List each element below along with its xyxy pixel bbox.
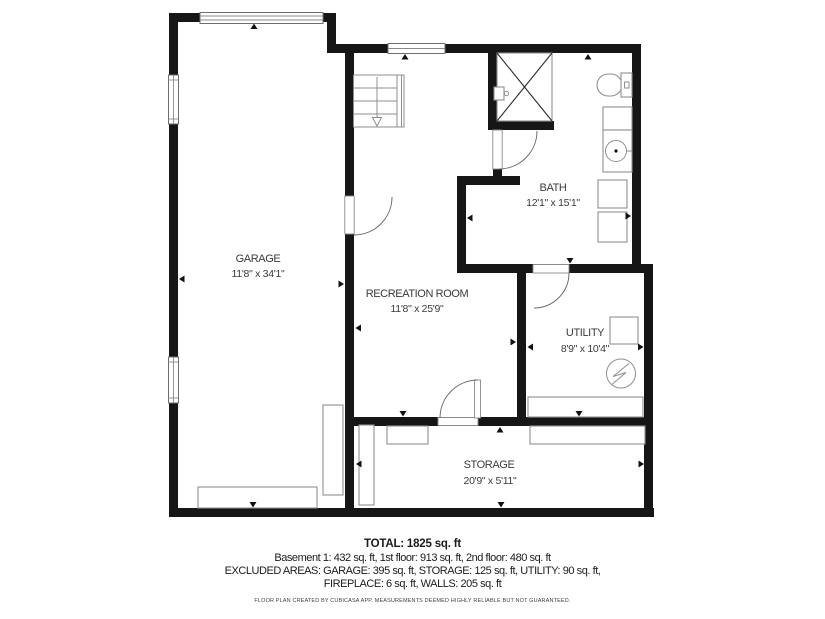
toilet-icon (597, 73, 632, 97)
lightning-bolt (612, 364, 629, 385)
door-leaf (533, 265, 569, 274)
wall-segment (345, 417, 653, 426)
room-label-storage: STORAGE 20'9" x 5'11" (464, 459, 517, 487)
window (169, 357, 179, 403)
excluded-areas-line1: EXCLUDED AREAS: GARAGE: 395 sq. ft, STOR… (0, 565, 825, 578)
shower-icon (494, 53, 552, 121)
panel-circle (607, 359, 636, 388)
room-name: STORAGE (464, 459, 515, 471)
room-name: BATH (540, 182, 567, 194)
total-area: TOTAL: 1825 sq. ft (0, 538, 825, 552)
toilet-tank (621, 73, 632, 97)
room-name: RECREATION ROOM (366, 288, 469, 300)
room-label-bath: BATH 12'1" x 15'1" (526, 182, 580, 209)
room-dimensions: 11'8" x 34'1" (232, 268, 285, 280)
electrical-panel-icon (607, 359, 636, 388)
utility-bench (528, 397, 643, 417)
shower-valve (494, 87, 504, 100)
vanity-counter (603, 107, 632, 130)
door-leaf (493, 130, 502, 169)
room-dimensions: 12'1" x 15'1" (526, 197, 580, 209)
bath-cabinet (598, 212, 627, 242)
garage-door-window (200, 13, 323, 24)
windows (169, 13, 446, 404)
sink-drain (614, 149, 617, 152)
door-opening (438, 418, 478, 426)
toilet-bowl (597, 74, 622, 96)
door-recreation-to-bath (493, 130, 537, 169)
wall-segment (457, 176, 520, 185)
door-garage-to-recreation (345, 196, 392, 235)
window-frame (200, 13, 323, 24)
room-label-utility: UTILITY 8'9" x 10'4" (561, 327, 610, 355)
stairs-down-arrow (373, 118, 382, 127)
door-bath-to-utility (533, 265, 569, 309)
door-swing-arc (440, 380, 478, 418)
room-label-recreation-room: RECREATION ROOM 11'8" x 25'9" (366, 288, 469, 315)
storage-shelf (530, 426, 645, 444)
window (169, 75, 179, 124)
door-leaf (345, 196, 354, 234)
floor-plan-canvas: GARAGE 11'8" x 34'1" RECREATION ROOM 11'… (0, 0, 825, 525)
room-label-garage: GARAGE 11'8" x 34'1" (232, 253, 285, 280)
wall-segment (644, 264, 653, 517)
room-name: UTILITY (566, 327, 605, 339)
wall-segment (345, 44, 354, 517)
wall-segment (488, 121, 554, 130)
door-swing-arc (354, 197, 392, 235)
wall-segment (169, 508, 654, 517)
wall-segment (632, 44, 641, 273)
wall-segment (517, 264, 526, 425)
door-recreation-to-storage (438, 380, 481, 426)
room-name: GARAGE (236, 253, 281, 265)
door-leaf (475, 380, 481, 418)
excluded-areas-line2: FIREPLACE: 6 sq. ft, WALLS: 205 sq. ft (0, 578, 825, 591)
room-dimensions: 20'9" x 5'11" (464, 475, 517, 487)
disclaimer: FLOOR PLAN CREATED BY CUBICASA APP. MEAS… (0, 598, 825, 604)
floor-areas: Basement 1: 432 sq. ft, 1st floor: 913 s… (0, 552, 825, 565)
room-dimensions: 8'9" x 10'4" (561, 343, 610, 355)
water-heater-icon (610, 317, 638, 344)
sink-icon (603, 130, 632, 172)
doors (345, 130, 569, 426)
area-summary: TOTAL: 1825 sq. ft Basement 1: 432 sq. f… (0, 538, 825, 604)
garage-cabinet (323, 405, 343, 495)
wall-segment (327, 44, 641, 53)
garage-workbench (198, 487, 317, 508)
door-swing-arc (534, 273, 569, 308)
bath-cabinet (598, 180, 627, 208)
storage-shelf (387, 426, 428, 444)
door-swing-arc (499, 131, 537, 169)
window (388, 44, 445, 54)
stairs-down-icon (354, 75, 405, 127)
room-dimensions: 11'8" x 25'9" (391, 303, 444, 315)
floor-plan-page: GARAGE 11'8" x 34'1" RECREATION ROOM 11'… (0, 0, 825, 619)
wall-segment (457, 176, 466, 270)
